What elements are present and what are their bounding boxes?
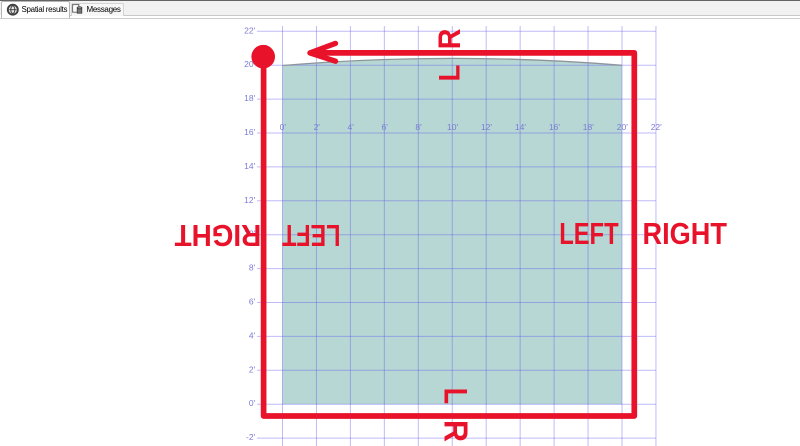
svg-text:4': 4' (348, 122, 355, 132)
svg-text:0': 0' (249, 398, 256, 408)
svg-text:12': 12' (481, 122, 492, 132)
svg-text:R: R (436, 420, 473, 442)
svg-text:L: L (437, 388, 473, 404)
svg-text:18': 18' (244, 93, 255, 103)
svg-text:0': 0' (280, 122, 287, 132)
svg-text:14': 14' (515, 122, 526, 132)
svg-text:2': 2' (314, 122, 321, 132)
svg-text:RIGHT: RIGHT (174, 218, 261, 251)
svg-text:16': 16' (549, 122, 560, 132)
svg-text:22': 22' (244, 25, 255, 35)
svg-text:L: L (433, 65, 466, 82)
svg-text:R: R (432, 28, 467, 49)
svg-text:20': 20' (617, 122, 628, 132)
svg-text:18': 18' (583, 122, 594, 132)
svg-text:10': 10' (447, 122, 458, 132)
svg-text:LEFT: LEFT (282, 218, 341, 251)
svg-text:6': 6' (381, 122, 388, 132)
svg-text:8': 8' (249, 263, 256, 273)
svg-text:2': 2' (249, 364, 256, 374)
svg-text:6': 6' (249, 297, 256, 307)
svg-text:14': 14' (244, 161, 255, 171)
svg-text:RIGHT: RIGHT (643, 218, 728, 251)
svg-text:8': 8' (415, 122, 422, 132)
svg-text:4': 4' (249, 330, 256, 340)
svg-text:16': 16' (244, 127, 255, 137)
svg-text:12': 12' (244, 195, 255, 205)
svg-text:LEFT: LEFT (559, 218, 619, 251)
svg-text:22': 22' (651, 122, 662, 132)
svg-text:-2': -2' (246, 432, 256, 442)
